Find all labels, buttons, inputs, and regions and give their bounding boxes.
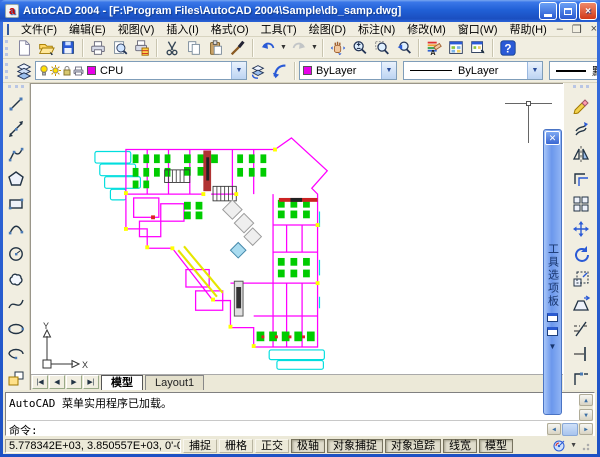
tab-next-button[interactable]: ▶	[66, 375, 82, 389]
toggle-osnap[interactable]: 对象捕捉	[327, 439, 383, 453]
crosshair-vertical	[528, 103, 529, 143]
plot-preview-button[interactable]	[109, 38, 131, 58]
tool-palettes-title: 工具选项板	[545, 243, 561, 308]
circle-button[interactable]	[4, 241, 28, 266]
rectangle-icon	[6, 194, 26, 214]
tool-palettes-close-icon[interactable]: ✕	[545, 131, 560, 145]
undo-dropdown-caret[interactable]: ▼	[279, 38, 288, 58]
command-prompt-text: 命令:	[9, 424, 38, 437]
menu-help[interactable]: 帮助(H)	[504, 21, 553, 37]
scroll-left-icon[interactable]: ◀	[547, 423, 561, 435]
toolbar-grip[interactable]	[573, 85, 589, 90]
new-button[interactable]	[13, 38, 35, 58]
color-swatch	[303, 66, 312, 75]
menu-tools[interactable]: 工具(T)	[255, 21, 303, 37]
command-window: AutoCAD 菜单实用程序已加载。 ▲ ▼ 命令: ◀ ▶	[3, 390, 597, 437]
make-object-layer-current-icon	[271, 62, 289, 80]
status-tray-dropdown-icon[interactable]: ▼	[570, 442, 577, 449]
toggle-polar[interactable]: 极轴	[291, 439, 325, 453]
linetype-sample	[410, 70, 452, 71]
polyline-icon	[6, 144, 26, 164]
ucs-x-label: X	[82, 360, 88, 370]
rotate-icon	[571, 244, 591, 264]
scale-icon	[571, 269, 591, 289]
scroll-down-icon[interactable]: ▼	[579, 409, 593, 421]
ellipse-button[interactable]	[4, 316, 28, 341]
layer-properties-manager-icon	[15, 62, 33, 80]
redo-icon	[290, 39, 308, 57]
paste-icon	[207, 39, 225, 57]
command-history[interactable]: AutoCAD 菜单实用程序已加载。	[7, 394, 579, 421]
layout-tab-bar: |◀ ◀ ▶ ▶| 模型 Layout1 ▶	[31, 374, 563, 390]
layer-freeze-sun-icon	[50, 65, 61, 76]
trim-button[interactable]	[569, 316, 593, 341]
command-text-area[interactable]: AutoCAD 菜单实用程序已加载。 ▲ ▼ 命令: ◀ ▶	[5, 392, 595, 436]
move-button[interactable]	[569, 216, 593, 241]
document-area: Y X |◀ ◀ ▶ ▶| 模型 Layout1 ▶	[30, 83, 563, 390]
layers-properties-toolbar: CPU ▼ ByLayer ▼ ByLayer ▼ 默认	[3, 59, 597, 83]
minimize-button[interactable]	[539, 2, 557, 20]
extend-button[interactable]	[569, 341, 593, 366]
copy-icon	[185, 39, 203, 57]
tool-palettes-icon	[469, 39, 487, 57]
layer-previous-button[interactable]	[247, 61, 269, 81]
tab-first-button[interactable]: |◀	[32, 375, 48, 389]
toggle-lineweight[interactable]: 线宽	[443, 439, 477, 453]
toolbar-separator	[322, 39, 324, 57]
toolbar-separator	[82, 39, 84, 57]
toolbar-separator	[418, 39, 420, 57]
insert-block-icon	[6, 369, 26, 389]
command-vscrollbar[interactable]: ▲ ▼	[579, 394, 593, 421]
toggle-ortho[interactable]: 正交	[255, 439, 289, 453]
tab-prev-button[interactable]: ◀	[49, 375, 65, 389]
cut-icon	[163, 39, 181, 57]
revision-cloud-button[interactable]	[4, 266, 28, 291]
floor-plan-drawing	[85, 136, 343, 374]
tool-palettes-button[interactable]	[467, 38, 489, 58]
doc-restore-button[interactable]: ❒	[570, 23, 584, 36]
toolbar-separator	[156, 39, 158, 57]
properties-icon: A	[425, 39, 443, 57]
zoom-window-button[interactable]	[371, 38, 393, 58]
application-window: a AutoCAD 2004 - [F:\Program Files\AutoC…	[0, 0, 600, 457]
move-icon	[571, 219, 591, 239]
ucs-y-label: Y	[43, 322, 49, 331]
array-icon	[571, 194, 591, 214]
window-title: AutoCAD 2004 - [F:\Program Files\AutoCAD…	[23, 5, 401, 17]
svg-text:A: A	[430, 48, 435, 57]
palette-window-icon	[547, 327, 558, 336]
tab-layout1[interactable]: Layout1	[145, 375, 204, 390]
menu-draw[interactable]: 绘图(D)	[303, 21, 352, 37]
break-icon	[571, 369, 591, 389]
menu-edit[interactable]: 编辑(E)	[63, 21, 112, 37]
status-bar: 5.778342E+03, 3.850557E+03, 0'-0" 捕捉 栅格 …	[3, 437, 597, 454]
save-icon	[59, 39, 77, 57]
tab-model[interactable]: 模型	[101, 375, 143, 390]
color-combo[interactable]: ByLayer ▼	[299, 61, 397, 80]
stretch-button[interactable]	[569, 291, 593, 316]
menu-view[interactable]: 视图(V)	[112, 21, 161, 37]
toggle-otrack[interactable]: 对象追踪	[385, 439, 441, 453]
window-content: 文件(F) 编辑(E) 视图(V) 插入(I) 格式(O) 工具(T) 绘图(D…	[3, 22, 597, 454]
ellipse-arc-button[interactable]	[4, 341, 28, 366]
plot-button[interactable]	[87, 38, 109, 58]
linetype-combo[interactable]: ByLayer ▼	[403, 61, 543, 80]
help-button[interactable]: ?	[497, 38, 519, 58]
scroll-up-icon[interactable]: ▲	[579, 394, 593, 406]
menu-modify[interactable]: 修改(M)	[401, 21, 452, 37]
match-properties-icon	[229, 39, 247, 57]
draw-toolbar	[3, 83, 30, 390]
svg-text:?: ?	[504, 42, 511, 55]
insert-block-button[interactable]	[4, 366, 28, 390]
layer-previous-icon	[249, 62, 267, 80]
help-icon: ?	[499, 39, 517, 57]
lineweight-sample	[556, 70, 586, 72]
publish-button[interactable]	[131, 38, 153, 58]
layer-on-bulb-icon	[39, 65, 49, 76]
layer-plot-icon	[73, 66, 84, 76]
toolbar-separator	[492, 39, 494, 57]
undo-icon	[259, 39, 277, 57]
restore-icon	[564, 8, 572, 15]
standard-toolbar: ▼ ▼ A ?	[3, 37, 597, 59]
pan-icon	[329, 39, 347, 57]
tab-last-button[interactable]: ▶|	[83, 375, 99, 389]
spline-icon	[6, 294, 26, 314]
design-center-button[interactable]	[445, 38, 467, 58]
erase-icon	[571, 94, 591, 114]
undo-button[interactable]	[257, 38, 279, 58]
autocad-logo-icon: a	[5, 4, 19, 18]
new-icon	[15, 39, 33, 57]
publish-icon	[133, 39, 151, 57]
tool-palettes-titlebar[interactable]: ✕ 工具选项板 ▼	[543, 129, 562, 415]
mirror-icon	[571, 144, 591, 164]
zoom-window-icon	[373, 39, 391, 57]
plot-icon	[89, 39, 107, 57]
properties-button[interactable]: A	[423, 38, 445, 58]
menu-bar: 文件(F) 编辑(E) 视图(V) 插入(I) 格式(O) 工具(T) 绘图(D…	[3, 22, 597, 37]
command-prompt[interactable]: 命令:	[7, 422, 547, 436]
break-button[interactable]	[569, 366, 593, 390]
lineweight-combo-value: 默认	[592, 63, 597, 79]
zoom-previous-icon	[395, 39, 413, 57]
offset-button[interactable]	[569, 166, 593, 191]
scale-button[interactable]	[569, 266, 593, 291]
crosshair-pickbox	[526, 101, 531, 106]
polyline-button[interactable]	[4, 141, 28, 166]
minimize-icon	[544, 14, 552, 17]
command-history-line: AutoCAD 菜单实用程序已加载。	[9, 397, 172, 410]
stretch-icon	[571, 294, 591, 314]
toolbar-grip[interactable]	[5, 40, 10, 56]
construction-line-icon	[6, 119, 26, 139]
linetype-combo-dropdown-icon[interactable]: ▼	[527, 62, 542, 79]
close-icon: ×	[585, 6, 591, 17]
plot-preview-icon	[111, 39, 129, 57]
communication-center-icon[interactable]	[552, 439, 566, 452]
layer-combo[interactable]: CPU ▼	[35, 61, 247, 80]
revision-cloud-icon	[6, 269, 26, 289]
doc-minimize-button[interactable]: –	[553, 23, 567, 36]
toolbar-grip[interactable]	[5, 63, 10, 79]
zoom-previous-button[interactable]	[393, 38, 415, 58]
lineweight-combo[interactable]: 默认	[549, 61, 597, 80]
toolbar-separator	[294, 62, 296, 80]
layer-combo-dropdown-icon[interactable]: ▼	[231, 62, 246, 79]
polygon-button[interactable]	[4, 166, 28, 191]
construction-line-button[interactable]	[4, 116, 28, 141]
match-properties-button[interactable]	[227, 38, 249, 58]
offset-icon	[571, 169, 591, 189]
palette-window-icon	[547, 313, 558, 322]
layer-combo-value: CPU	[100, 65, 123, 77]
array-button[interactable]	[569, 191, 593, 216]
command-hscrollbar[interactable]: ◀ ▶	[547, 423, 593, 436]
polygon-icon	[6, 169, 26, 189]
toggle-snap[interactable]: 捕捉	[183, 439, 217, 453]
restore-button[interactable]	[559, 2, 577, 20]
line-icon	[6, 94, 26, 114]
color-combo-dropdown-icon[interactable]: ▼	[381, 62, 396, 79]
scroll-right-icon[interactable]: ▶	[579, 423, 593, 435]
ucs-icon: Y X	[37, 322, 89, 372]
document-icon[interactable]	[7, 24, 9, 35]
coordinate-readout: 5.778342E+03, 3.850557E+03, 0'-0"	[5, 439, 181, 453]
design-center-icon	[447, 39, 465, 57]
copy-object-button[interactable]	[569, 116, 593, 141]
menu-dimension[interactable]: 标注(N)	[352, 21, 401, 37]
arc-button[interactable]	[4, 216, 28, 241]
circle-icon	[6, 244, 26, 264]
save-button[interactable]	[57, 38, 79, 58]
toggle-grid[interactable]: 栅格	[219, 439, 253, 453]
redo-dropdown-caret[interactable]: ▼	[310, 38, 319, 58]
open-icon	[37, 39, 55, 57]
redo-button[interactable]	[288, 38, 310, 58]
resize-grip[interactable]	[581, 440, 593, 452]
zoom-realtime-button[interactable]	[349, 38, 371, 58]
toggle-model-space[interactable]: 模型	[479, 439, 513, 453]
title-bar[interactable]: a AutoCAD 2004 - [F:\Program Files\AutoC…	[0, 0, 600, 22]
main-area: Y X |◀ ◀ ▶ ▶| 模型 Layout1 ▶	[3, 83, 597, 390]
rectangle-button[interactable]	[4, 191, 28, 216]
rotate-button[interactable]	[569, 241, 593, 266]
close-button[interactable]: ×	[579, 2, 597, 20]
toolbar-grip[interactable]	[8, 85, 24, 90]
paste-button[interactable]	[205, 38, 227, 58]
linetype-combo-value: ByLayer	[458, 65, 498, 77]
menu-window[interactable]: 窗口(W)	[452, 21, 504, 37]
make-object-layer-current-button[interactable]	[269, 61, 291, 81]
layer-properties-manager-button[interactable]	[13, 61, 35, 81]
cut-button[interactable]	[161, 38, 183, 58]
pan-button[interactable]	[327, 38, 349, 58]
extend-icon	[571, 344, 591, 364]
spline-button[interactable]	[4, 291, 28, 316]
erase-button[interactable]	[569, 91, 593, 116]
ellipse-arc-icon	[6, 344, 26, 364]
modify-toolbar	[563, 83, 597, 390]
mirror-button[interactable]	[569, 141, 593, 166]
line-button[interactable]	[4, 91, 28, 116]
doc-close-button[interactable]: ×	[587, 23, 600, 36]
color-combo-value: ByLayer	[316, 65, 356, 77]
layer-lock-icon	[62, 65, 72, 76]
menu-insert[interactable]: 插入(I)	[160, 21, 204, 37]
arc-icon	[6, 219, 26, 239]
palette-chevron-icon[interactable]: ▼	[549, 342, 557, 351]
ellipse-icon	[6, 319, 26, 339]
zoom-realtime-icon	[351, 39, 369, 57]
toolbar-separator	[252, 39, 254, 57]
menu-file[interactable]: 文件(F)	[15, 21, 63, 37]
trim-icon	[571, 319, 591, 339]
menu-format[interactable]: 格式(O)	[205, 21, 255, 37]
copy-object-icon	[571, 119, 591, 139]
copy-button[interactable]	[183, 38, 205, 58]
layer-color-swatch	[87, 66, 96, 75]
drawing-canvas[interactable]: Y X	[31, 84, 563, 374]
open-button[interactable]	[35, 38, 57, 58]
scrollbar-thumb[interactable]	[562, 423, 578, 436]
